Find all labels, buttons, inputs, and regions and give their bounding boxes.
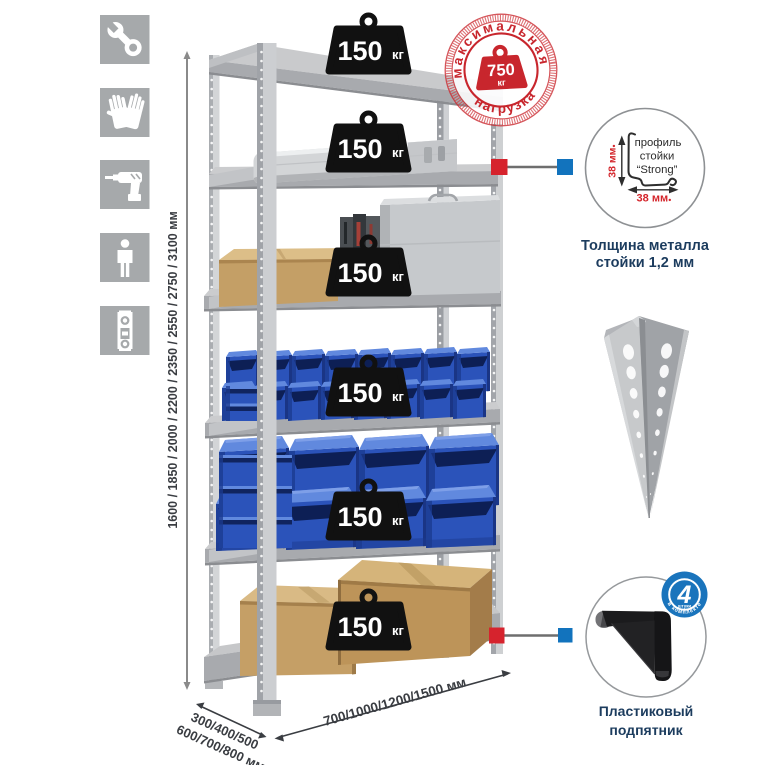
svg-text:профиль: профиль [635,137,682,149]
svg-text:“Strong”: “Strong” [637,164,678,176]
svg-text:150: 150 [337,36,382,66]
svg-text:Пластиковый: Пластиковый [599,703,694,719]
svg-text:150: 150 [337,258,382,288]
svg-text:кг: кг [392,513,405,528]
svg-text:38 мм●: 38 мм● [607,144,619,177]
svg-text:Толщина металла: Толщина металла [581,238,710,254]
svg-text:38 мм●: 38 мм● [637,193,672,205]
svg-text:подпятник: подпятник [609,722,683,738]
svg-text:стойки 1,2 мм: стойки 1,2 мм [596,255,695,271]
svg-text:1600 / 1850 / 2000 / 2200 / 23: 1600 / 1850 / 2000 / 2200 / 2350 / 2550 … [166,211,180,528]
svg-text:кг: кг [392,145,405,160]
svg-text:стойки: стойки [640,151,675,163]
svg-text:кг: кг [392,47,405,62]
svg-text:кг: кг [392,269,405,284]
svg-text:кг: кг [497,77,506,87]
svg-text:150: 150 [337,378,382,408]
svg-text:штуки: штуки [678,604,692,609]
svg-text:кг: кг [392,389,405,404]
svg-text:150: 150 [337,134,382,164]
svg-text:150: 150 [337,502,382,532]
svg-text:кг: кг [392,623,405,638]
svg-text:150: 150 [337,612,382,642]
